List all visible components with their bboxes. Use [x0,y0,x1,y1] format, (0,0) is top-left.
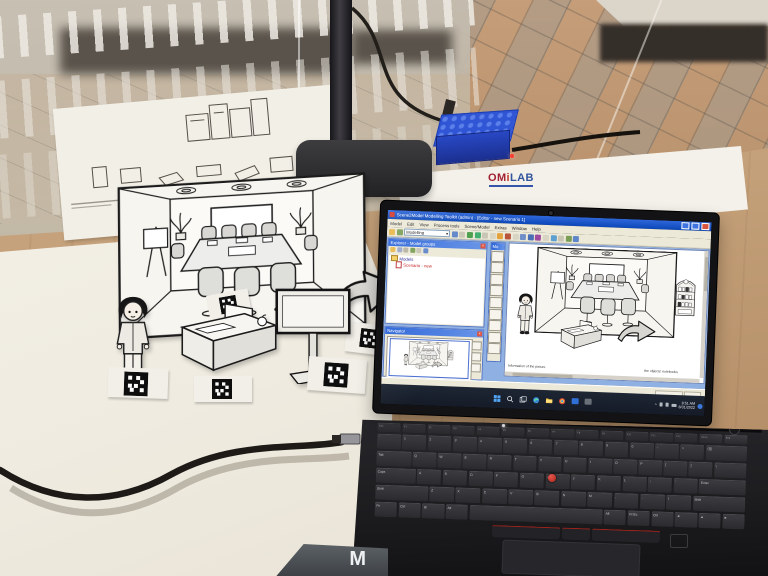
key[interactable]: 7 [554,440,578,456]
toolbar-icon[interactable] [535,234,541,240]
navigator-body[interactable] [385,336,473,381]
key[interactable]: Shift [375,484,428,501]
canvas-caption-right: the objects' notebooks [644,369,678,374]
palette-tool-arrow[interactable] [488,320,501,331]
key[interactable]: N [561,491,586,507]
middle-click-button[interactable] [562,528,591,541]
model-canvas[interactable]: Information of the picture the objects' … [504,243,710,385]
key[interactable]: J [571,474,596,490]
toolbar-icon[interactable] [490,232,496,238]
canvas-scene-drawing [509,246,702,375]
key[interactable]: 0 [629,443,653,459]
scroll-thumb[interactable] [703,257,707,291]
omilab-tagline-line [489,185,533,187]
key[interactable]: = [680,444,704,460]
blue-lego-device [436,112,520,170]
tree-item-label: Scenario - new [403,262,432,268]
tray-caret-icon[interactable]: ^ [655,402,657,407]
key[interactable]: E [463,454,487,470]
toolbar-icon[interactable] [497,233,503,239]
stone-ledge [596,0,768,26]
explorer-tool-icon[interactable] [410,248,415,253]
dark-wall-band [600,24,768,62]
app-icon-gray[interactable] [584,398,592,406]
key[interactable]: K [596,475,621,491]
navigator-zoom-controls[interactable] [470,340,480,378]
menu-item[interactable]: Extras [494,224,506,229]
start-button[interactable] [493,394,501,402]
close-button[interactable] [701,223,709,230]
palette-title: Mo [492,243,498,250]
toolbar-icon[interactable] [452,231,458,237]
key[interactable]: Y [538,456,562,472]
laptop-keyboard-deck: EscF1F2F3F4F5F6F7F8F9F10F11F12HomeEnd `1… [352,408,768,576]
close-icon[interactable]: x [477,331,482,336]
palette-tool-table[interactable] [490,285,503,296]
toolbar-icon[interactable] [396,229,402,235]
key[interactable]: F5 [501,427,524,437]
explorer-panel: Explorer - Model groups x Models [384,238,487,328]
key[interactable]: M [587,492,612,508]
toolbar-icon[interactable] [528,234,534,240]
key[interactable]: R [488,455,512,471]
key[interactable]: S [443,470,468,486]
close-icon[interactable]: x [480,243,485,248]
key[interactable]: 6 [528,439,552,455]
modelling-mode-select[interactable]: Modelling ▾ [404,228,450,237]
omilab-logo: OMiLAB [488,172,534,187]
key[interactable]: F10 [625,431,648,441]
edge-icon[interactable] [532,396,540,404]
key[interactable]: T [513,455,537,471]
explorer-tool-icon[interactable] [423,248,428,253]
key[interactable]: [ [663,461,687,477]
key[interactable]: L [622,476,647,492]
key[interactable]: Shift [692,496,745,513]
key[interactable]: F6 [526,428,549,438]
key[interactable]: F11 [650,432,673,442]
key[interactable]: 9 [604,442,628,458]
navigator-title: Navigator [387,327,405,335]
key[interactable]: End [724,435,747,445]
clock-date: 8/31/2022 [678,405,695,410]
palette-tool-note[interactable] [487,343,500,354]
aruco-marker [124,372,149,397]
navigator-viewport-frame [388,338,469,379]
navigator-panel: Navigator x [382,326,484,381]
marker-card-desk [194,376,252,402]
key[interactable]: Z [429,486,454,502]
menu-item[interactable]: Window [512,225,527,231]
key[interactable]: ► [722,514,745,530]
file-explorer-icon[interactable] [545,396,553,404]
toolbar-icon[interactable] [512,233,518,239]
key[interactable]: ⌫ [705,445,747,462]
mic-mute-led [502,424,505,427]
key[interactable]: Tab [376,451,411,467]
system-tray[interactable]: ^ 8:51 AM 8/31/2022 [654,394,703,416]
key[interactable]: ] [689,462,713,478]
key[interactable]: Ctrl [651,511,674,527]
task-view-icon[interactable] [519,395,527,403]
notification-icon[interactable] [697,403,702,408]
key[interactable]: Ctrl [398,502,421,518]
key[interactable]: O [613,459,637,475]
fingerprint-reader[interactable] [670,534,688,548]
key[interactable]: \ [714,462,747,478]
key[interactable]: F8 [575,429,598,439]
marker-card-sign [307,356,367,394]
app-icon [390,212,395,217]
toolbar-icon[interactable] [467,231,473,237]
zoom-in-button[interactable] [472,341,482,350]
key[interactable]: F4 [476,426,499,436]
key[interactable]: 4 [478,437,502,453]
key[interactable]: 3 [453,436,477,452]
palette-tool-shelf[interactable] [488,332,501,343]
key[interactable]: Alt [604,509,627,525]
key[interactable]: ⊞ [422,503,445,519]
taskbar-clock[interactable]: 8:51 AM 8/31/2022 [678,401,695,410]
key[interactable]: D [468,471,493,487]
key[interactable]: C [482,488,507,504]
app-icon-blue[interactable] [571,397,579,405]
key[interactable]: ▲ [698,513,721,529]
menu-item[interactable]: Scene/Model [464,223,489,229]
chevron-down-icon: ▾ [446,231,448,236]
laptop-screen: Scene2Model Modelling Toolkit (admin) - … [372,200,720,427]
menu-item[interactable]: Model [390,220,402,225]
maximize-button[interactable] [691,223,699,230]
explorer-tool-icon[interactable] [397,247,402,252]
explorer-tool-icon[interactable] [390,247,395,252]
search-icon[interactable] [506,395,514,403]
palette-tool-pointer[interactable] [491,250,504,261]
key[interactable]: U [563,457,587,473]
zoom-out-button[interactable] [471,352,481,361]
key[interactable]: Alt [446,504,469,520]
model-tree[interactable]: Models Scenario - new [387,255,486,326]
key[interactable]: X [455,487,480,503]
menu-item[interactable]: Help [532,226,541,231]
speaker-icon[interactable] [665,403,669,407]
key[interactable]: Caps [376,468,416,485]
key[interactable]: F9 [600,430,623,440]
palette-tool-person[interactable] [490,262,503,273]
key[interactable]: W [437,453,461,469]
aruco-marker [323,362,349,388]
key[interactable]: . [640,494,665,510]
key[interactable]: 5 [503,438,527,454]
toolbar-icon[interactable] [558,235,564,241]
laptop-keyboard[interactable]: EscF1F2F3F4F5F6F7F8F9F10F11F12HomeEnd `1… [374,423,747,530]
key[interactable]: , [613,493,638,509]
key[interactable]: G [520,473,545,489]
key[interactable]: F12 [674,433,697,443]
key[interactable]: Enter [699,479,746,496]
marker-card-person [107,367,168,399]
key[interactable]: Esc [377,423,400,433]
palette-tool-chair[interactable] [490,274,503,285]
key[interactable]: V [508,489,533,505]
explorer-tool-icon[interactable] [403,247,408,252]
toolbar-icon[interactable] [459,231,465,237]
photo-scene: OMiLAB [0,0,768,576]
key[interactable]: - [655,443,679,459]
aruco-marker [212,379,232,399]
scroll-thumb[interactable] [513,372,573,377]
key[interactable]: 8 [579,441,603,457]
toolbar-icon[interactable] [482,232,488,238]
power-led [510,154,514,158]
toolbar-icon[interactable] [543,234,549,240]
key[interactable]: I [588,458,612,474]
key[interactable]: 1 [402,435,426,451]
key[interactable]: P [638,460,662,476]
battery-icon[interactable] [671,403,676,406]
right-click-button[interactable] [592,529,660,543]
left-click-button[interactable] [492,525,560,539]
key[interactable]: A [417,469,442,485]
key[interactable]: F2 [427,424,450,434]
key[interactable]: F7 [551,429,574,439]
toolbar-icon[interactable] [505,233,511,239]
key[interactable]: B [534,490,559,506]
palette-tool-board[interactable] [489,297,502,308]
trackpoint[interactable] [548,474,556,482]
key[interactable]: F3 [452,425,475,435]
omilab-logo-lab: LAB [510,172,534,184]
logo-letter-m: M [349,548,366,571]
key[interactable]: ◄ [675,512,698,528]
key[interactable]: ; [648,477,673,493]
key[interactable]: Fn [374,501,397,517]
key[interactable]: PrtSc [627,510,650,526]
toolbar-icon[interactable] [565,235,571,241]
canvas-caption-left: Information of the picture [508,364,546,369]
chrome-icon[interactable] [558,397,566,405]
toolbar-icon[interactable] [389,228,395,234]
palette-tool-plant[interactable] [489,308,502,319]
model-icon [396,261,402,268]
omilab-logo-om: OM [488,172,507,184]
trackpad[interactable] [501,540,640,576]
key[interactable]: ` [377,434,401,450]
key[interactable]: / [666,495,691,511]
key[interactable]: Q [412,452,436,468]
key[interactable] [469,505,602,525]
key[interactable]: F [494,472,519,488]
minimize-button[interactable] [681,222,689,229]
menu-item[interactable]: View [419,222,428,227]
key[interactable]: 2 [427,436,451,452]
key[interactable]: F1 [402,423,425,433]
menu-item[interactable]: Edit [407,221,415,226]
lego-side-face [436,130,510,165]
toolbar-icon[interactable] [550,235,556,241]
key[interactable]: Home [699,434,722,444]
explorer-tool-icon[interactable] [416,248,421,253]
toolbar-icon[interactable] [474,232,480,238]
palette-header[interactable]: Mo [491,243,504,250]
key[interactable]: ' [673,478,698,494]
mode-label: Modelling [406,230,424,236]
menu-item[interactable]: Process tools [434,222,460,228]
wifi-icon[interactable] [659,403,663,407]
screen-content: Scene2Model Modelling Toolkit (admin) - … [380,210,711,416]
diorama-desk-cutout [172,300,286,374]
toolbar-icon[interactable] [573,235,579,241]
zoom-fit-button[interactable] [471,363,481,372]
toolbar-icon[interactable] [520,233,526,239]
